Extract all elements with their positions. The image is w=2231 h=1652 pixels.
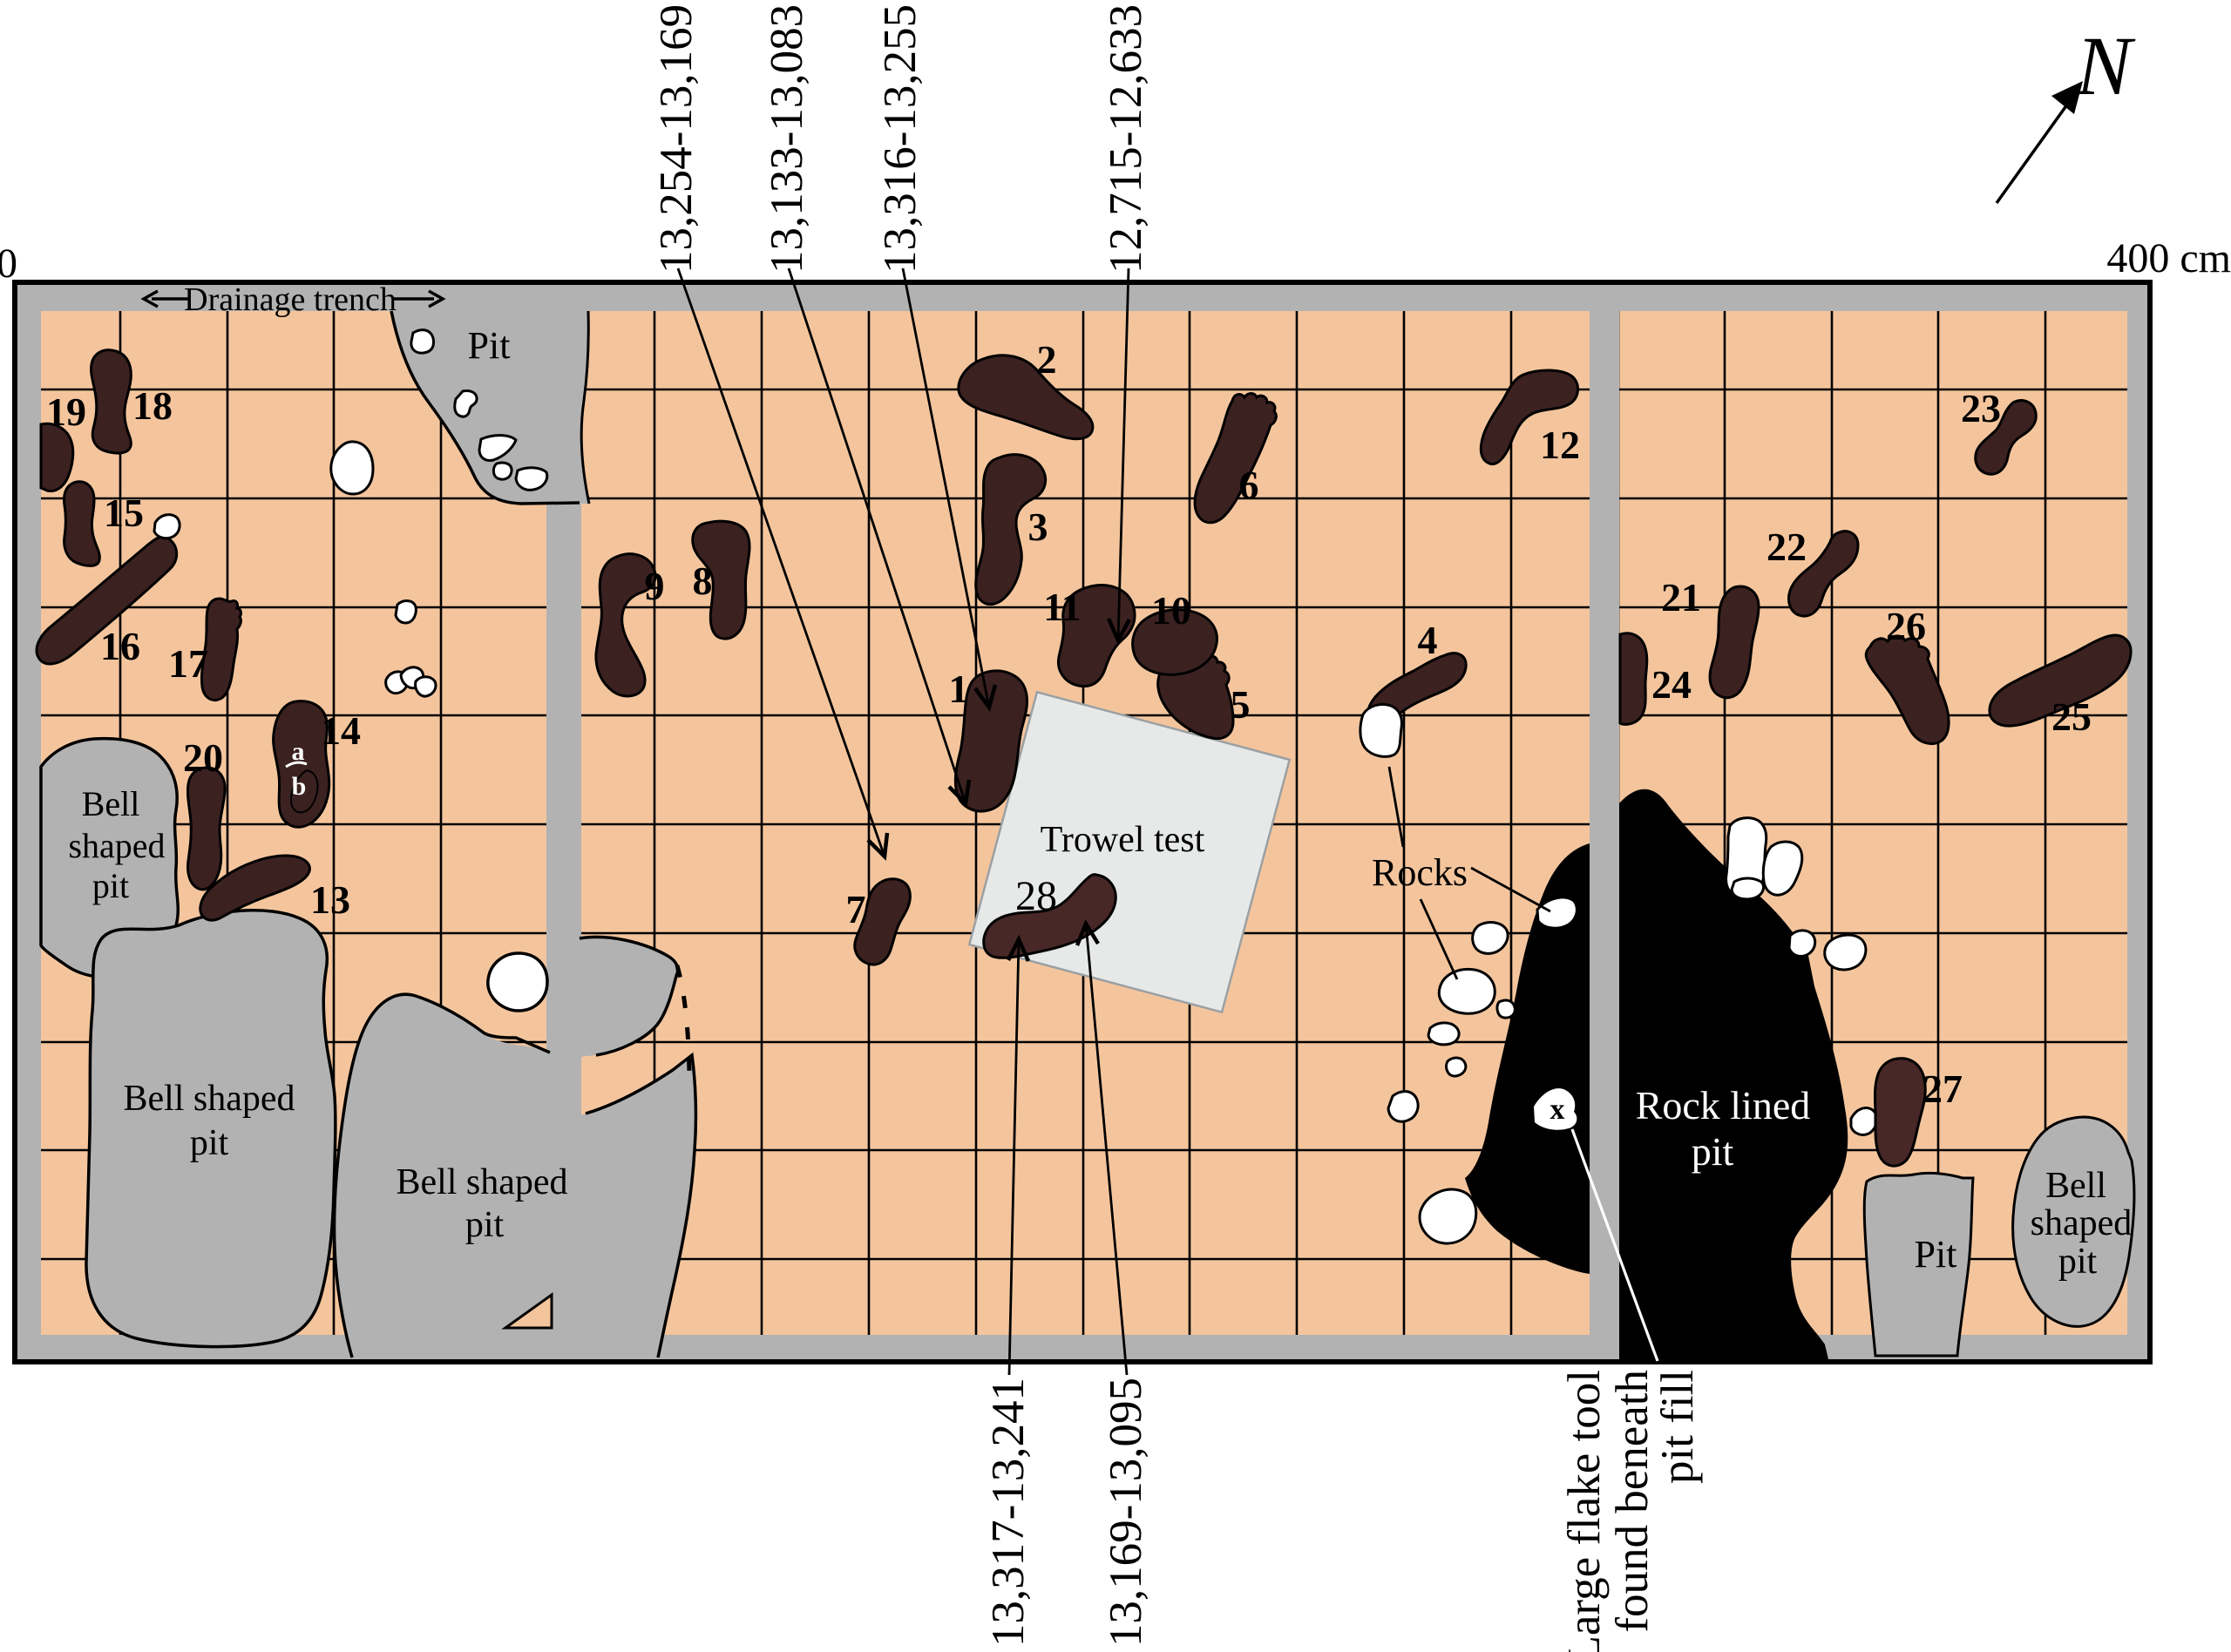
svg-text:Bell: Bell (82, 784, 140, 823)
svg-text:Pit: Pit (468, 324, 511, 367)
svg-text:20: 20 (183, 735, 223, 780)
svg-text:25: 25 (2051, 694, 2092, 739)
svg-text:pit: pit (465, 1205, 505, 1245)
svg-text:x: x (1550, 1093, 1565, 1126)
svg-text:8: 8 (693, 559, 713, 603)
svg-text:Bell: Bell (2045, 1166, 2106, 1206)
svg-text:12,715-12,633: 12,715-12,633 (1101, 4, 1151, 274)
svg-text:12: 12 (1540, 423, 1580, 467)
svg-text:13: 13 (310, 877, 350, 922)
svg-text:7: 7 (846, 887, 866, 931)
svg-text:pit: pit (92, 866, 129, 905)
svg-text:24: 24 (1651, 662, 1692, 707)
svg-text:16: 16 (100, 624, 140, 668)
svg-text:22: 22 (1766, 525, 1807, 569)
svg-text:27: 27 (1922, 1066, 1963, 1111)
svg-text:shaped: shaped (68, 826, 165, 865)
svg-text:Bell shaped: Bell shaped (396, 1162, 567, 1202)
svg-text:1: 1 (949, 667, 969, 711)
svg-text:Pit: Pit (1915, 1233, 1957, 1276)
svg-text:pit fill: pit fill (1652, 1370, 1703, 1484)
svg-text:N: N (2075, 19, 2136, 112)
svg-text:26: 26 (1886, 604, 1926, 648)
svg-text:13,316-13,255: 13,316-13,255 (875, 4, 926, 274)
svg-text:28: 28 (1015, 873, 1057, 919)
svg-text:13,133-13,083: 13,133-13,083 (762, 4, 812, 274)
svg-text:Large flake tool: Large flake tool (1559, 1370, 1610, 1652)
svg-text:5: 5 (1231, 682, 1251, 727)
svg-text:pit: pit (1692, 1129, 1734, 1174)
svg-text:13,169-13,095: 13,169-13,095 (1101, 1378, 1151, 1647)
svg-text:19: 19 (46, 389, 86, 434)
svg-text:11: 11 (1043, 585, 1081, 629)
svg-text:3: 3 (1028, 504, 1048, 549)
svg-text:400 cm: 400 cm (2106, 235, 2231, 281)
svg-text:13,254-13,169: 13,254-13,169 (651, 4, 702, 274)
svg-text:6: 6 (1239, 463, 1259, 507)
svg-text:shaped: shaped (2031, 1203, 2133, 1243)
svg-text:2: 2 (1037, 337, 1057, 382)
svg-text:b: b (292, 772, 307, 801)
svg-text:10: 10 (1151, 588, 1191, 633)
svg-text:Rocks: Rocks (1372, 851, 1468, 894)
svg-text:Bell shaped: Bell shaped (123, 1079, 295, 1119)
svg-text:21: 21 (1661, 575, 1701, 619)
svg-text:18: 18 (132, 383, 173, 428)
svg-text:a: a (292, 737, 305, 766)
svg-text:pit: pit (190, 1123, 229, 1163)
svg-text:13,317-13,241: 13,317-13,241 (983, 1378, 1034, 1647)
svg-text:pit: pit (2058, 1242, 2098, 1282)
svg-text:found beneath: found beneath (1607, 1370, 1658, 1633)
svg-text:Trowel test: Trowel test (1041, 820, 1205, 860)
svg-text:17: 17 (168, 641, 208, 686)
svg-text:4: 4 (1418, 618, 1438, 662)
svg-text:Rock lined: Rock lined (1636, 1083, 1811, 1127)
svg-text:14: 14 (321, 708, 361, 753)
svg-text:23: 23 (1961, 386, 2001, 430)
svg-text:9: 9 (645, 564, 665, 608)
svg-text:15: 15 (104, 491, 144, 535)
svg-text:Drainage trench: Drainage trench (184, 281, 397, 318)
